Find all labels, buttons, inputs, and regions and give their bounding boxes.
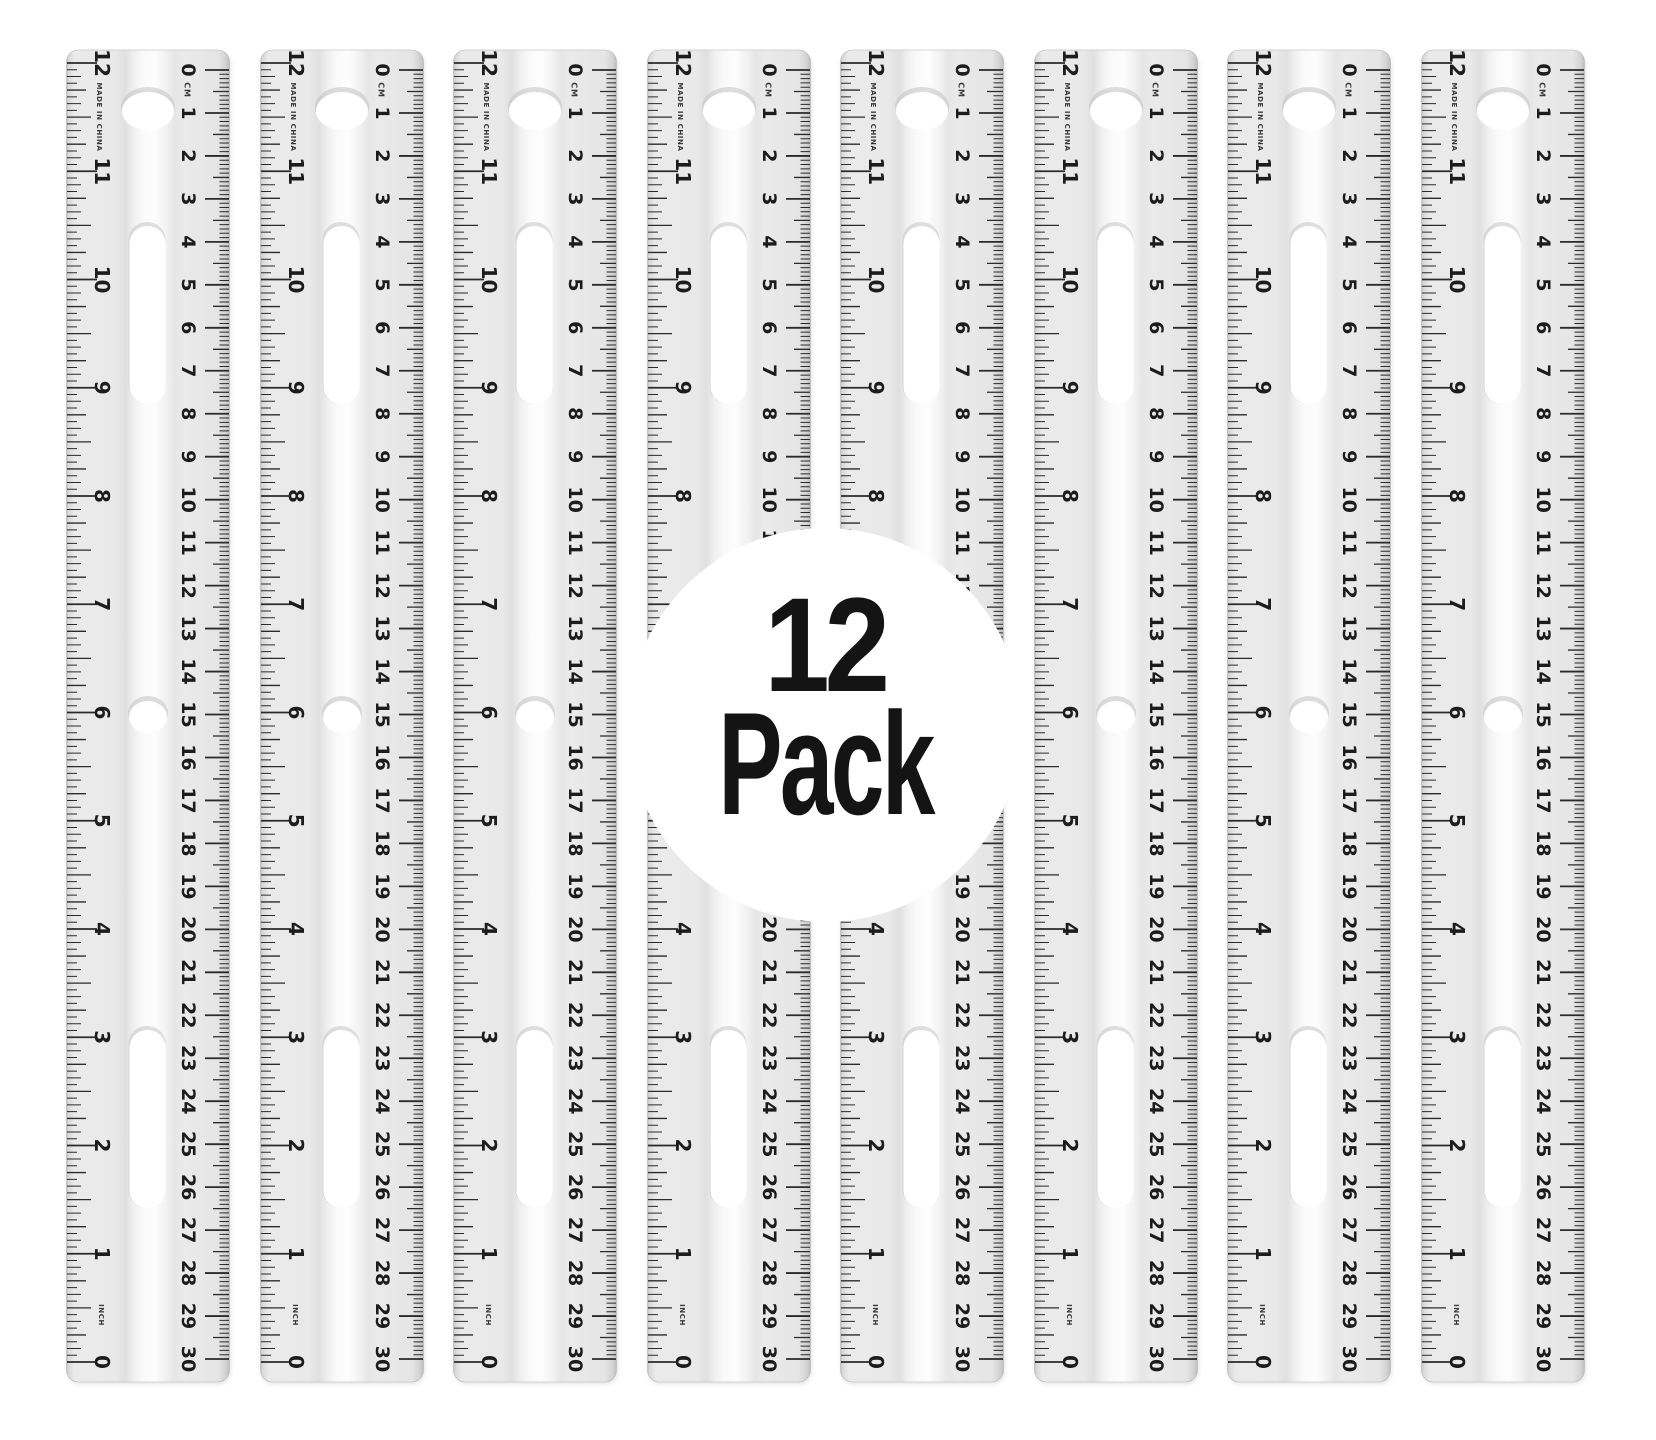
svg-text:21: 21 xyxy=(1145,959,1167,985)
svg-text:28: 28 xyxy=(951,1260,973,1286)
svg-text:9: 9 xyxy=(1251,381,1275,395)
svg-text:29: 29 xyxy=(1532,1303,1554,1329)
lower-slot xyxy=(130,1030,166,1208)
ruler-7: 1211109876543210012345678910111213141516… xyxy=(1227,48,1391,1384)
svg-text:11: 11 xyxy=(177,529,199,555)
lower-slot xyxy=(710,1030,746,1208)
svg-text:22: 22 xyxy=(1145,1002,1167,1028)
svg-text:30: 30 xyxy=(951,1346,973,1372)
svg-text:9: 9 xyxy=(477,381,501,395)
svg-text:4: 4 xyxy=(477,922,501,936)
cm-unit-label: CM xyxy=(1537,82,1546,97)
svg-text:29: 29 xyxy=(1338,1303,1360,1329)
svg-text:3: 3 xyxy=(1145,192,1167,205)
made-in-china-label: MADE IN CHINA xyxy=(1063,83,1071,152)
svg-text:20: 20 xyxy=(371,916,393,942)
svg-text:25: 25 xyxy=(1338,1131,1360,1157)
svg-text:11: 11 xyxy=(1445,157,1469,185)
top-hole xyxy=(509,92,561,130)
svg-text:17: 17 xyxy=(1338,787,1360,813)
svg-text:27: 27 xyxy=(371,1217,393,1243)
svg-text:18: 18 xyxy=(564,830,586,856)
svg-text:7: 7 xyxy=(758,364,780,377)
svg-text:4: 4 xyxy=(1251,922,1275,936)
svg-text:0: 0 xyxy=(1058,1355,1082,1369)
svg-text:12: 12 xyxy=(1532,572,1554,598)
svg-text:7: 7 xyxy=(90,597,114,611)
svg-text:17: 17 xyxy=(564,787,586,813)
svg-text:9: 9 xyxy=(90,381,114,395)
svg-text:18: 18 xyxy=(1532,830,1554,856)
lower-slot xyxy=(517,1030,553,1208)
svg-text:17: 17 xyxy=(1145,787,1167,813)
inch-unit-label: INCH xyxy=(678,1304,686,1326)
svg-text:10: 10 xyxy=(1445,266,1469,294)
svg-text:29: 29 xyxy=(951,1303,973,1329)
svg-text:23: 23 xyxy=(371,1045,393,1071)
svg-text:24: 24 xyxy=(1145,1088,1167,1114)
svg-text:10: 10 xyxy=(758,486,780,512)
svg-text:5: 5 xyxy=(951,278,973,291)
svg-text:30: 30 xyxy=(564,1346,586,1372)
made-in-china-label: MADE IN CHINA xyxy=(289,83,297,152)
ruler-pack-product-image: 1211109876543210012345678910111213141516… xyxy=(0,0,1656,1440)
svg-text:25: 25 xyxy=(564,1131,586,1157)
svg-text:5: 5 xyxy=(1251,814,1275,828)
svg-text:8: 8 xyxy=(1445,489,1469,503)
svg-text:18: 18 xyxy=(1145,830,1167,856)
upper-slot xyxy=(130,226,166,404)
svg-text:2: 2 xyxy=(1251,1139,1275,1153)
svg-text:12: 12 xyxy=(1145,572,1167,598)
cm-unit-label: CM xyxy=(1150,82,1159,97)
middle-hole xyxy=(1097,701,1135,733)
svg-text:23: 23 xyxy=(564,1045,586,1071)
svg-text:30: 30 xyxy=(1145,1346,1167,1372)
svg-text:1: 1 xyxy=(371,106,393,119)
svg-text:24: 24 xyxy=(951,1088,973,1114)
svg-text:11: 11 xyxy=(1338,529,1360,555)
svg-text:10: 10 xyxy=(1058,266,1082,294)
svg-text:4: 4 xyxy=(1532,235,1554,248)
svg-text:9: 9 xyxy=(371,450,393,463)
svg-text:11: 11 xyxy=(1145,529,1167,555)
svg-text:16: 16 xyxy=(1338,744,1360,770)
svg-text:20: 20 xyxy=(951,916,973,942)
svg-text:19: 19 xyxy=(177,873,199,899)
svg-text:13: 13 xyxy=(1145,615,1167,641)
svg-text:1: 1 xyxy=(90,1247,114,1261)
svg-text:27: 27 xyxy=(1532,1217,1554,1243)
svg-text:0: 0 xyxy=(671,1355,695,1369)
svg-text:21: 21 xyxy=(1338,959,1360,985)
svg-text:25: 25 xyxy=(951,1131,973,1157)
svg-text:26: 26 xyxy=(371,1174,393,1200)
svg-text:7: 7 xyxy=(951,364,973,377)
svg-text:12: 12 xyxy=(284,49,308,77)
lower-slot xyxy=(1484,1030,1520,1208)
svg-text:5: 5 xyxy=(1445,814,1469,828)
svg-text:6: 6 xyxy=(371,321,393,334)
svg-text:20: 20 xyxy=(1338,916,1360,942)
svg-text:6: 6 xyxy=(1532,321,1554,334)
svg-text:14: 14 xyxy=(1145,658,1167,684)
svg-text:9: 9 xyxy=(758,450,780,463)
svg-text:14: 14 xyxy=(1532,658,1554,684)
svg-text:17: 17 xyxy=(371,787,393,813)
svg-text:2: 2 xyxy=(564,149,586,162)
svg-text:2: 2 xyxy=(951,149,973,162)
svg-text:11: 11 xyxy=(864,157,888,185)
svg-text:17: 17 xyxy=(1532,787,1554,813)
svg-text:3: 3 xyxy=(284,1030,308,1044)
svg-text:6: 6 xyxy=(758,321,780,334)
upper-slot xyxy=(323,226,359,404)
svg-text:15: 15 xyxy=(564,701,586,727)
svg-text:0: 0 xyxy=(1145,63,1167,76)
top-hole xyxy=(122,92,174,130)
svg-text:1: 1 xyxy=(758,106,780,119)
svg-text:8: 8 xyxy=(1145,407,1167,420)
svg-text:29: 29 xyxy=(1145,1303,1167,1329)
svg-text:14: 14 xyxy=(371,658,393,684)
svg-text:7: 7 xyxy=(1338,364,1360,377)
svg-text:4: 4 xyxy=(371,235,393,248)
svg-text:15: 15 xyxy=(371,701,393,727)
svg-text:4: 4 xyxy=(1445,922,1469,936)
middle-hole xyxy=(516,701,554,733)
svg-text:30: 30 xyxy=(371,1346,393,1372)
svg-text:27: 27 xyxy=(1338,1217,1360,1243)
svg-text:12: 12 xyxy=(177,572,199,598)
svg-text:7: 7 xyxy=(177,364,199,377)
svg-text:9: 9 xyxy=(1338,450,1360,463)
svg-text:11: 11 xyxy=(1058,157,1082,185)
svg-text:23: 23 xyxy=(758,1045,780,1071)
svg-text:8: 8 xyxy=(284,489,308,503)
cm-unit-label: CM xyxy=(957,82,966,97)
svg-text:12: 12 xyxy=(1445,49,1469,77)
svg-text:26: 26 xyxy=(758,1174,780,1200)
made-in-china-label: MADE IN CHINA xyxy=(482,83,490,152)
svg-text:11: 11 xyxy=(951,529,973,555)
svg-text:11: 11 xyxy=(371,529,393,555)
svg-text:2: 2 xyxy=(371,149,393,162)
svg-text:13: 13 xyxy=(1338,615,1360,641)
svg-text:3: 3 xyxy=(864,1030,888,1044)
svg-text:6: 6 xyxy=(284,706,308,720)
lower-slot xyxy=(1097,1030,1133,1208)
svg-text:24: 24 xyxy=(758,1088,780,1114)
svg-text:21: 21 xyxy=(371,959,393,985)
svg-text:14: 14 xyxy=(1338,658,1360,684)
svg-text:30: 30 xyxy=(758,1346,780,1372)
svg-text:22: 22 xyxy=(371,1002,393,1028)
svg-text:7: 7 xyxy=(1058,597,1082,611)
upper-slot xyxy=(710,226,746,404)
svg-text:4: 4 xyxy=(864,922,888,936)
svg-text:0: 0 xyxy=(1338,63,1360,76)
pack-badge: 12 Pack xyxy=(628,528,1022,922)
svg-text:19: 19 xyxy=(564,873,586,899)
svg-text:0: 0 xyxy=(477,1355,501,1369)
svg-text:7: 7 xyxy=(1251,597,1275,611)
svg-text:30: 30 xyxy=(1338,1346,1360,1372)
svg-text:10: 10 xyxy=(1338,486,1360,512)
svg-text:26: 26 xyxy=(177,1174,199,1200)
middle-hole xyxy=(1290,701,1328,733)
svg-text:16: 16 xyxy=(177,744,199,770)
svg-text:30: 30 xyxy=(1532,1346,1554,1372)
svg-text:8: 8 xyxy=(1338,407,1360,420)
svg-text:20: 20 xyxy=(758,916,780,942)
svg-text:0: 0 xyxy=(90,1355,114,1369)
svg-text:26: 26 xyxy=(951,1174,973,1200)
svg-text:9: 9 xyxy=(1145,450,1167,463)
svg-text:3: 3 xyxy=(1532,192,1554,205)
svg-text:10: 10 xyxy=(477,266,501,294)
cm-unit-label: CM xyxy=(183,82,192,97)
svg-text:3: 3 xyxy=(758,192,780,205)
svg-text:1: 1 xyxy=(1058,1247,1082,1261)
svg-text:8: 8 xyxy=(564,407,586,420)
svg-text:29: 29 xyxy=(758,1303,780,1329)
svg-text:27: 27 xyxy=(1145,1217,1167,1243)
svg-text:2: 2 xyxy=(90,1139,114,1153)
svg-text:22: 22 xyxy=(1338,1002,1360,1028)
svg-text:0: 0 xyxy=(758,63,780,76)
svg-text:18: 18 xyxy=(177,830,199,856)
svg-text:12: 12 xyxy=(671,49,695,77)
svg-text:1: 1 xyxy=(1145,106,1167,119)
ruler-1: 1211109876543210012345678910111213141516… xyxy=(66,48,230,1384)
svg-text:8: 8 xyxy=(371,407,393,420)
svg-text:7: 7 xyxy=(1445,597,1469,611)
top-hole xyxy=(316,92,368,130)
svg-text:16: 16 xyxy=(371,744,393,770)
top-hole xyxy=(896,92,948,130)
inch-unit-label: INCH xyxy=(1258,1304,1266,1326)
svg-text:1: 1 xyxy=(564,106,586,119)
svg-text:9: 9 xyxy=(177,450,199,463)
svg-text:26: 26 xyxy=(1338,1174,1360,1200)
svg-text:25: 25 xyxy=(1145,1131,1167,1157)
pack-badge-text: 12 Pack xyxy=(663,579,988,837)
svg-text:20: 20 xyxy=(1532,916,1554,942)
upper-slot xyxy=(1291,226,1327,404)
svg-text:9: 9 xyxy=(671,381,695,395)
svg-text:21: 21 xyxy=(758,959,780,985)
svg-text:5: 5 xyxy=(477,814,501,828)
svg-text:0: 0 xyxy=(1445,1355,1469,1369)
svg-text:12: 12 xyxy=(477,49,501,77)
svg-text:19: 19 xyxy=(1145,873,1167,899)
svg-text:4: 4 xyxy=(671,922,695,936)
svg-text:20: 20 xyxy=(1145,916,1167,942)
svg-text:13: 13 xyxy=(371,615,393,641)
svg-text:7: 7 xyxy=(477,597,501,611)
svg-text:8: 8 xyxy=(1058,489,1082,503)
svg-text:13: 13 xyxy=(177,615,199,641)
svg-text:6: 6 xyxy=(1338,321,1360,334)
svg-text:19: 19 xyxy=(1532,873,1554,899)
svg-text:11: 11 xyxy=(564,529,586,555)
svg-text:6: 6 xyxy=(90,706,114,720)
upper-slot xyxy=(1484,226,1520,404)
top-hole xyxy=(1090,92,1142,130)
svg-text:28: 28 xyxy=(1532,1260,1554,1286)
svg-text:12: 12 xyxy=(1251,49,1275,77)
svg-text:15: 15 xyxy=(1338,701,1360,727)
svg-text:4: 4 xyxy=(951,235,973,248)
svg-text:10: 10 xyxy=(951,486,973,512)
svg-text:16: 16 xyxy=(564,744,586,770)
svg-text:2: 2 xyxy=(177,149,199,162)
svg-text:0: 0 xyxy=(284,1355,308,1369)
svg-text:6: 6 xyxy=(1058,706,1082,720)
svg-text:10: 10 xyxy=(1251,266,1275,294)
lower-slot xyxy=(904,1030,940,1208)
ruler-8: 1211109876543210012345678910111213141516… xyxy=(1421,48,1585,1384)
svg-text:0: 0 xyxy=(564,63,586,76)
svg-text:7: 7 xyxy=(1532,364,1554,377)
svg-text:11: 11 xyxy=(1251,157,1275,185)
svg-text:18: 18 xyxy=(371,830,393,856)
svg-text:26: 26 xyxy=(1145,1174,1167,1200)
svg-text:10: 10 xyxy=(864,266,888,294)
svg-text:12: 12 xyxy=(1058,49,1082,77)
svg-text:1: 1 xyxy=(864,1247,888,1261)
svg-text:4: 4 xyxy=(90,922,114,936)
svg-text:9: 9 xyxy=(564,450,586,463)
svg-text:2: 2 xyxy=(758,149,780,162)
svg-text:25: 25 xyxy=(1532,1131,1554,1157)
inch-unit-label: INCH xyxy=(1065,1304,1073,1326)
middle-hole xyxy=(129,701,167,733)
svg-text:0: 0 xyxy=(951,63,973,76)
svg-text:29: 29 xyxy=(177,1303,199,1329)
made-in-china-label: MADE IN CHINA xyxy=(869,83,877,152)
svg-text:6: 6 xyxy=(951,321,973,334)
svg-text:27: 27 xyxy=(564,1217,586,1243)
svg-text:25: 25 xyxy=(371,1131,393,1157)
svg-text:27: 27 xyxy=(951,1217,973,1243)
svg-text:24: 24 xyxy=(371,1088,393,1114)
svg-text:8: 8 xyxy=(177,407,199,420)
svg-text:10: 10 xyxy=(1532,486,1554,512)
svg-text:6: 6 xyxy=(177,321,199,334)
svg-text:8: 8 xyxy=(864,489,888,503)
svg-text:28: 28 xyxy=(1145,1260,1167,1286)
svg-text:6: 6 xyxy=(1145,321,1167,334)
svg-text:10: 10 xyxy=(177,486,199,512)
svg-text:10: 10 xyxy=(564,486,586,512)
made-in-china-label: MADE IN CHINA xyxy=(95,83,103,152)
svg-text:23: 23 xyxy=(177,1045,199,1071)
svg-text:4: 4 xyxy=(1058,922,1082,936)
svg-text:8: 8 xyxy=(1532,407,1554,420)
middle-hole xyxy=(323,701,361,733)
svg-text:5: 5 xyxy=(1532,278,1554,291)
top-hole xyxy=(1477,92,1529,130)
svg-text:5: 5 xyxy=(284,814,308,828)
svg-text:2: 2 xyxy=(477,1139,501,1153)
svg-text:4: 4 xyxy=(564,235,586,248)
svg-text:9: 9 xyxy=(284,381,308,395)
svg-text:1: 1 xyxy=(477,1247,501,1261)
svg-text:15: 15 xyxy=(177,701,199,727)
svg-text:16: 16 xyxy=(1145,744,1167,770)
svg-text:3: 3 xyxy=(1251,1030,1275,1044)
svg-text:12: 12 xyxy=(90,49,114,77)
svg-text:2: 2 xyxy=(1445,1139,1469,1153)
inch-unit-label: INCH xyxy=(871,1304,879,1326)
svg-text:25: 25 xyxy=(758,1131,780,1157)
svg-text:1: 1 xyxy=(177,106,199,119)
cm-unit-label: CM xyxy=(376,82,385,97)
upper-slot xyxy=(1097,226,1133,404)
svg-text:12: 12 xyxy=(371,572,393,598)
cm-unit-label: CM xyxy=(763,82,772,97)
svg-text:10: 10 xyxy=(671,266,695,294)
svg-text:28: 28 xyxy=(758,1260,780,1286)
svg-text:6: 6 xyxy=(564,321,586,334)
made-in-china-label: MADE IN CHINA xyxy=(1450,83,1458,152)
svg-text:11: 11 xyxy=(671,157,695,185)
svg-text:29: 29 xyxy=(564,1303,586,1329)
ruler-3: 1211109876543210012345678910111213141516… xyxy=(453,48,617,1384)
svg-text:22: 22 xyxy=(758,1002,780,1028)
svg-text:0: 0 xyxy=(1532,63,1554,76)
top-hole xyxy=(1283,92,1335,130)
svg-text:7: 7 xyxy=(371,364,393,377)
svg-text:10: 10 xyxy=(284,266,308,294)
svg-text:28: 28 xyxy=(564,1260,586,1286)
svg-text:21: 21 xyxy=(951,959,973,985)
svg-text:5: 5 xyxy=(564,278,586,291)
svg-text:8: 8 xyxy=(1251,489,1275,503)
svg-text:0: 0 xyxy=(864,1355,888,1369)
svg-text:5: 5 xyxy=(1058,814,1082,828)
svg-text:22: 22 xyxy=(951,1002,973,1028)
svg-text:2: 2 xyxy=(1058,1139,1082,1153)
made-in-china-label: MADE IN CHINA xyxy=(676,83,684,152)
svg-text:21: 21 xyxy=(177,959,199,985)
cm-unit-label: CM xyxy=(1344,82,1353,97)
svg-text:27: 27 xyxy=(758,1217,780,1243)
svg-text:25: 25 xyxy=(177,1131,199,1157)
svg-text:6: 6 xyxy=(1445,706,1469,720)
svg-text:23: 23 xyxy=(951,1045,973,1071)
svg-text:19: 19 xyxy=(371,873,393,899)
svg-text:15: 15 xyxy=(1532,701,1554,727)
svg-text:23: 23 xyxy=(1532,1045,1554,1071)
svg-text:6: 6 xyxy=(1251,706,1275,720)
svg-text:3: 3 xyxy=(1445,1030,1469,1044)
svg-text:7: 7 xyxy=(1145,364,1167,377)
cm-unit-label: CM xyxy=(570,82,579,97)
upper-slot xyxy=(904,226,940,404)
svg-text:2: 2 xyxy=(864,1139,888,1153)
svg-text:3: 3 xyxy=(371,192,393,205)
svg-text:6: 6 xyxy=(477,706,501,720)
ruler-2: 1211109876543210012345678910111213141516… xyxy=(260,48,424,1384)
svg-text:21: 21 xyxy=(1532,959,1554,985)
svg-text:2: 2 xyxy=(671,1139,695,1153)
middle-hole xyxy=(1484,701,1522,733)
svg-text:26: 26 xyxy=(564,1174,586,1200)
svg-text:3: 3 xyxy=(1338,192,1360,205)
